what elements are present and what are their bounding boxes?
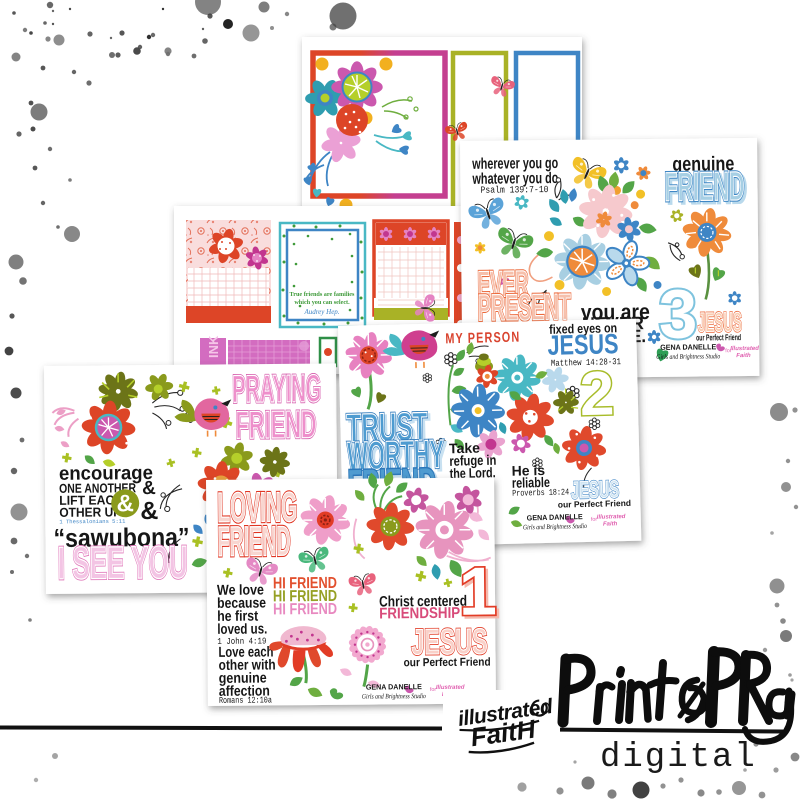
svg-text:GENA DANELLE: GENA DANELLE [527, 512, 583, 522]
svg-text:I SEE YOU: I SEE YOU [57, 536, 187, 589]
svg-text:GENA DANELLE: GENA DANELLE [366, 682, 422, 691]
svg-text:GENA DANELLE: GENA DANELLE [660, 342, 716, 352]
svg-text:MY PERSON: MY PERSON [445, 330, 520, 348]
svg-text:Girls and Brightness Studio: Girls and Brightness Studio [362, 692, 426, 701]
svg-text:FRIEND: FRIEND [664, 163, 744, 210]
svg-text:FRIENDSHIP: FRIENDSHIP [379, 605, 460, 623]
svg-text:HI FRIEND: HI FRIEND [273, 601, 337, 619]
svg-text:FRIEND: FRIEND [235, 404, 316, 448]
svg-text:INK: INK [206, 335, 221, 358]
svg-text:True friends are families: True friends are families [290, 291, 355, 298]
svg-text:our Perfect Friend: our Perfect Friend [696, 332, 741, 342]
svg-text:&: & [140, 497, 158, 525]
svg-text:digital: digital [600, 739, 757, 777]
svg-text:our Perfect Friend: our Perfect Friend [404, 657, 491, 670]
svg-text:Faith: Faith [736, 353, 751, 359]
svg-text:Faith: Faith [603, 521, 618, 527]
svg-text:our Perfect Friend: our Perfect Friend [558, 498, 631, 510]
svg-text:loved us.: loved us. [217, 621, 267, 637]
svg-text:Romans 12:10a: Romans 12:10a [219, 695, 272, 705]
svg-text:Audrey Hep.: Audrey Hep. [303, 308, 339, 316]
svg-text:Illustrated: Illustrated [730, 346, 759, 352]
svg-text:Proverbs 18:24: Proverbs 18:24 [512, 487, 569, 498]
svg-text:Psalm 139:7-10: Psalm 139:7-10 [480, 184, 548, 196]
svg-text:3: 3 [658, 276, 697, 353]
svg-text:which you can select.: which you can select. [294, 299, 350, 306]
svg-text:Girls and Brightness Studio: Girls and Brightness Studio [523, 522, 588, 532]
svg-text:Girls and Brightness Studio: Girls and Brightness Studio [656, 352, 720, 361]
svg-text:&: & [116, 490, 134, 517]
svg-text:FRIEND: FRIEND [217, 517, 290, 565]
svg-text:2: 2 [579, 359, 615, 429]
svg-text:Illustrated: Illustrated [597, 514, 626, 521]
svg-text:&: & [142, 478, 156, 499]
svg-text:JESUS: JESUS [547, 328, 619, 361]
svg-text:1: 1 [459, 553, 497, 629]
